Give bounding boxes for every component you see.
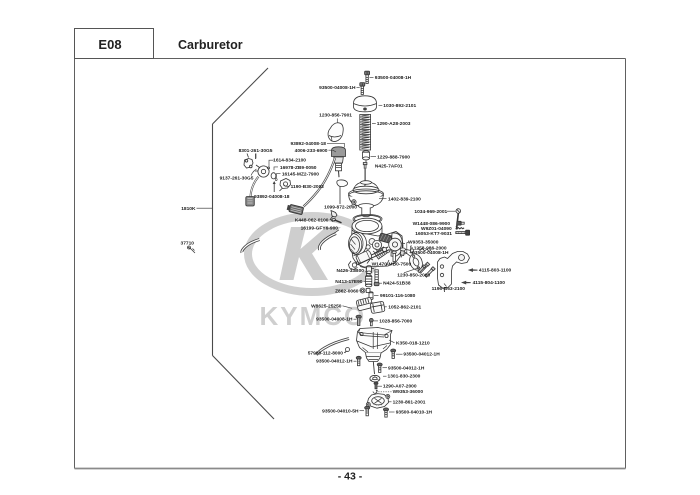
svg-text:K448-062-0100: K448-062-0100 <box>295 217 329 223</box>
svg-text:1030-892-2101: 1030-892-2101 <box>383 103 416 109</box>
svg-text:1301-830-2300: 1301-830-2300 <box>388 374 421 380</box>
svg-text:1196-B63-2100: 1196-B63-2100 <box>432 286 466 292</box>
svg-text:57980-112-8000: 57980-112-8000 <box>308 350 344 356</box>
svg-text:4006-233-6900: 4006-233-6900 <box>295 148 328 154</box>
svg-text:1034-969-2001: 1034-969-2001 <box>414 209 447 215</box>
svg-text:Carburetor: Carburetor <box>178 38 243 52</box>
svg-text:16978-ZB9-0050: 16978-ZB9-0050 <box>280 165 317 171</box>
svg-text:W1470-MB0-7500: W1470-MB0-7500 <box>372 262 412 268</box>
svg-text:16199-GFY6-900: 16199-GFY6-900 <box>301 226 339 232</box>
svg-text:N425-7AF01: N425-7AF01 <box>375 164 403 170</box>
svg-text:1290-A07-2000: 1290-A07-2000 <box>383 384 417 390</box>
svg-text:1402-839-2100: 1402-839-2100 <box>388 197 421 203</box>
svg-text:93892-04008-18: 93892-04008-18 <box>290 141 326 147</box>
svg-text:16053-KT7-9031: 16053-KT7-9031 <box>415 231 452 237</box>
svg-text:93500-04008-1H: 93500-04008-1H <box>412 250 449 256</box>
svg-text:93500-04012-1H: 93500-04012-1H <box>316 359 353 365</box>
svg-text:93500-04012-1H: 93500-04012-1H <box>388 365 425 371</box>
svg-text:1028-856-7000: 1028-856-7000 <box>379 318 412 324</box>
svg-text:93500-04010-1H: 93500-04010-1H <box>396 410 433 416</box>
svg-text:N426-33B00: N426-33B00 <box>337 268 365 274</box>
svg-text:93500-04010-5H: 93500-04010-5H <box>322 408 359 414</box>
svg-text:93892-04008-18: 93892-04008-18 <box>254 194 290 200</box>
svg-text:9137-261-30G5: 9137-261-30G5 <box>220 176 254 182</box>
svg-text:4115-803-1100: 4115-803-1100 <box>479 268 512 274</box>
svg-text:1810K: 1810K <box>181 206 196 212</box>
svg-text:Z862-0060: Z862-0060 <box>335 288 359 294</box>
svg-text:E08: E08 <box>98 37 121 52</box>
svg-text:1052-862-2101: 1052-862-2101 <box>388 304 421 310</box>
svg-text:1099-872-2000: 1099-872-2000 <box>324 205 357 211</box>
svg-text:1230-856-7901: 1230-856-7901 <box>319 113 352 119</box>
svg-text:W9353-36000: W9353-36000 <box>393 389 424 395</box>
svg-text:N413-17E90: N413-17E90 <box>335 279 363 285</box>
svg-text:93500-04008-1H: 93500-04008-1H <box>316 317 353 323</box>
svg-text:37710: 37710 <box>181 240 195 246</box>
svg-text:W9353-35000: W9353-35000 <box>408 240 439 246</box>
svg-text:16145-MZ2-7900: 16145-MZ2-7900 <box>282 172 319 178</box>
svg-text:1190-B30-2002: 1190-B30-2002 <box>291 184 325 190</box>
svg-text:W8625-25250: W8625-25250 <box>311 303 342 309</box>
svg-text:8301-261-30G5: 8301-261-30G5 <box>239 148 273 154</box>
svg-text:N424-51B38: N424-51B38 <box>383 281 411 287</box>
svg-text:99101-116-1080: 99101-116-1080 <box>380 293 416 299</box>
svg-text:K350-018-1210: K350-018-1210 <box>396 340 430 346</box>
svg-text:- 43 -: - 43 - <box>338 471 363 483</box>
svg-text:1230-861-2001: 1230-861-2001 <box>393 399 426 405</box>
svg-text:93500-04008-1H: 93500-04008-1H <box>375 75 412 81</box>
svg-text:1230-850-2000: 1230-850-2000 <box>397 273 430 279</box>
svg-text:1229-888-7900: 1229-888-7900 <box>377 154 410 160</box>
svg-text:1290-A28-2003: 1290-A28-2003 <box>377 121 411 127</box>
svg-text:93500-04008-1H: 93500-04008-1H <box>319 85 356 91</box>
svg-text:4115-804-1100: 4115-804-1100 <box>473 280 506 286</box>
svg-text:93500-04012-1H: 93500-04012-1H <box>403 352 440 358</box>
svg-text:W1448-086-9900: W1448-086-9900 <box>413 221 451 227</box>
svg-text:1614-834-2100: 1614-834-2100 <box>273 158 306 164</box>
